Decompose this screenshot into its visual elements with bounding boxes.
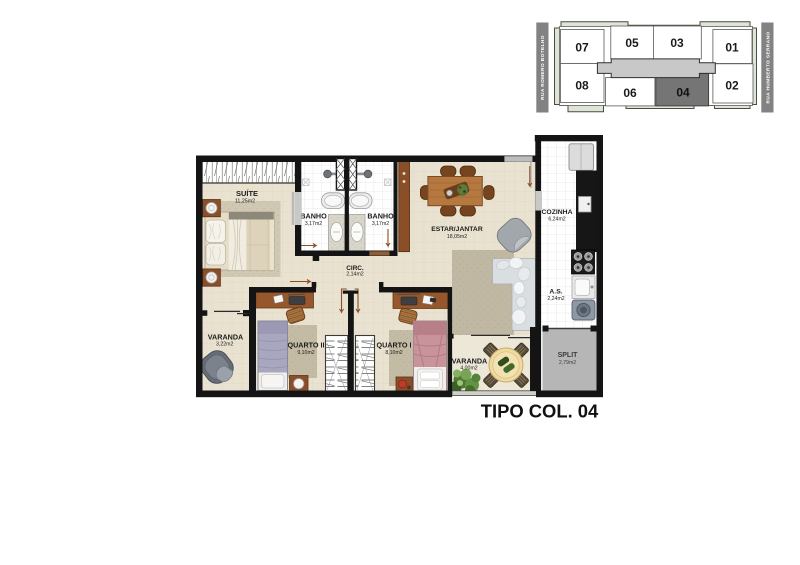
svg-text:QUARTO II: QUARTO II [287, 341, 324, 350]
svg-text:2,79m2: 2,79m2 [559, 360, 576, 366]
svg-text:2,14m2: 2,14m2 [346, 272, 363, 278]
svg-text:VARANDA: VARANDA [208, 333, 243, 342]
svg-text:COZINHA: COZINHA [542, 209, 573, 216]
svg-text:11,25m2: 11,25m2 [235, 199, 255, 205]
svg-text:4,00m2: 4,00m2 [460, 365, 477, 371]
svg-text:BANHO: BANHO [367, 212, 394, 221]
svg-text:SUÍTE: SUÍTE [236, 189, 258, 198]
svg-text:SPLIT: SPLIT [558, 352, 579, 359]
svg-text:03: 03 [670, 36, 684, 50]
svg-text:BANHO: BANHO [300, 212, 327, 221]
svg-text:A.S.: A.S. [549, 289, 562, 296]
svg-text:18,05m2: 18,05m2 [447, 234, 467, 240]
svg-text:VARANDA: VARANDA [452, 356, 487, 365]
svg-text:05: 05 [625, 36, 639, 50]
svg-text:RUA HUMBERTO SERRANO: RUA HUMBERTO SERRANO [765, 31, 770, 103]
svg-text:6,24m2: 6,24m2 [548, 217, 565, 223]
svg-text:08: 08 [575, 79, 589, 93]
svg-text:ESTAR/JANTAR: ESTAR/JANTAR [431, 226, 483, 233]
svg-text:9,10m2: 9,10m2 [297, 350, 314, 356]
svg-text:QUARTO I: QUARTO I [376, 341, 411, 350]
svg-text:07: 07 [575, 41, 589, 55]
svg-text:02: 02 [725, 79, 739, 93]
svg-text:RUA ROMERO BOTELHO: RUA ROMERO BOTELHO [540, 35, 545, 100]
svg-text:04: 04 [676, 86, 690, 100]
svg-text:3,17m2: 3,17m2 [372, 221, 389, 227]
svg-text:01: 01 [725, 41, 739, 55]
svg-text:TIPO COL. 04: TIPO COL. 04 [481, 401, 599, 422]
svg-text:06: 06 [623, 86, 637, 100]
svg-text:2,24m2: 2,24m2 [547, 296, 564, 302]
svg-text:3,22m2: 3,22m2 [216, 342, 233, 348]
svg-text:8,10m2: 8,10m2 [385, 350, 402, 356]
svg-text:3,17m2: 3,17m2 [305, 221, 322, 227]
